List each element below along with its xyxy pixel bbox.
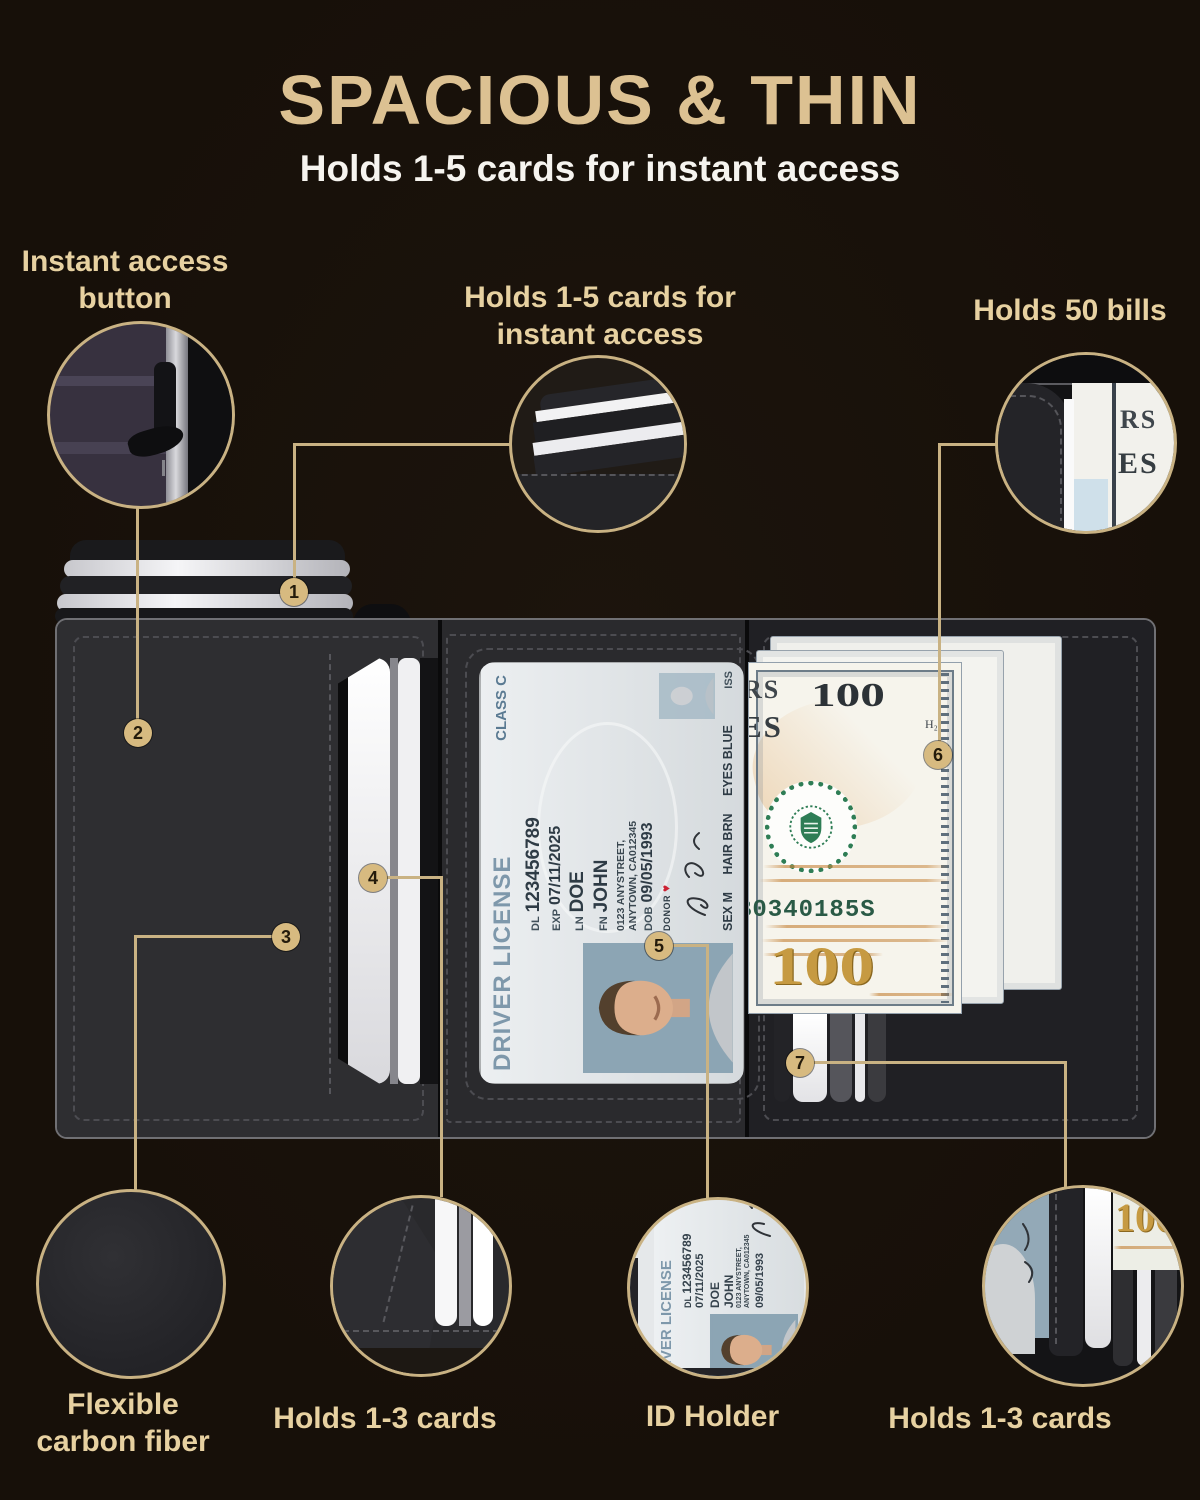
white-card xyxy=(1137,1270,1151,1366)
leader-line xyxy=(293,443,296,578)
license-class: CLASS C xyxy=(493,675,510,741)
leader-line xyxy=(1064,1061,1067,1187)
callout-line: instant access xyxy=(415,316,785,353)
field-label: DL xyxy=(530,916,542,931)
signature xyxy=(679,803,713,923)
label-flexible-carbon-fiber: Flexible carbon fiber xyxy=(8,1386,238,1460)
bill-denomination: 100 xyxy=(811,677,885,715)
page-subtitle: Holds 1-5 cards for instant access xyxy=(0,148,1200,190)
leather-pocket xyxy=(512,474,684,532)
marker-4: 4 xyxy=(359,864,387,892)
slot-shadow xyxy=(338,658,348,1084)
card-slot xyxy=(338,658,438,1084)
iss-field: ISS xyxy=(723,671,735,689)
gold-denomination: 100 xyxy=(1115,1194,1175,1241)
pocket-top-edge xyxy=(998,355,1174,385)
license-photo-fragment xyxy=(985,1188,1049,1338)
product-infographic: SPACIOUS & THIN Holds 1-5 cards for inst… xyxy=(0,0,1200,1500)
metal-card-stack xyxy=(55,538,415,624)
eyes-field: EYES BLUE xyxy=(721,725,735,796)
white-card xyxy=(1085,1188,1111,1348)
black-card xyxy=(420,658,438,1084)
gold-denomination: 100 xyxy=(769,935,874,997)
plate-position: H₂ xyxy=(925,717,938,732)
signature xyxy=(740,1197,780,1242)
id-window: DRIVER LICENSE CLASS C DL123456789 E xyxy=(479,662,744,1084)
bill-closeup: RS ES xyxy=(1072,383,1174,531)
callout-line: Holds 1-3 cards xyxy=(260,1400,510,1437)
script-line xyxy=(869,993,953,996)
marker-1: 1 xyxy=(280,578,308,606)
gray-card xyxy=(830,1014,852,1102)
window-frame-corner xyxy=(627,1258,758,1379)
card-edge xyxy=(459,1198,471,1326)
callout-line: Flexible xyxy=(8,1386,238,1423)
metal-card xyxy=(60,576,352,596)
button-stem xyxy=(162,460,165,476)
detail-circle-carbon-fiber xyxy=(36,1189,226,1379)
callout-instant-access-button: Instant access button xyxy=(5,243,245,317)
portrait-graphic xyxy=(583,943,733,1073)
seal-emblem xyxy=(788,804,834,850)
bill-text-fragment: ES xyxy=(748,709,783,745)
callout-line: Holds 1-3 cards xyxy=(880,1400,1120,1437)
treasury-seal-icon xyxy=(765,781,857,873)
leader-line xyxy=(136,505,139,720)
leader-line xyxy=(293,443,510,446)
callout-line: Holds 50 bills xyxy=(930,292,1200,329)
card-fan xyxy=(525,375,687,477)
callout-line: ID Holder xyxy=(600,1398,825,1435)
marker-6: 6 xyxy=(924,741,952,769)
black-card xyxy=(868,1014,886,1102)
portrait-graphic xyxy=(659,673,715,719)
license-address: 0123 ANYSTREET, xyxy=(615,817,627,931)
sex-field: SEX M xyxy=(721,892,735,931)
script-line xyxy=(759,879,949,882)
bill-tint-patch xyxy=(1072,479,1108,531)
callout-line: button xyxy=(5,280,245,317)
black-card xyxy=(1113,1270,1133,1366)
card-edge xyxy=(390,658,398,1084)
donor-label: DONOR xyxy=(662,895,672,931)
callout-line: Holds 1-5 cards for xyxy=(415,279,785,316)
leader-line xyxy=(938,443,941,743)
shadow xyxy=(188,324,232,506)
pocket-cards-fragment xyxy=(1113,1270,1181,1366)
page-title: SPACIOUS & THIN xyxy=(0,60,1200,140)
leader-line xyxy=(134,935,274,938)
leather-band xyxy=(50,376,170,386)
bill-serrated-edge xyxy=(941,673,949,1003)
field-value: 07/11/2025 xyxy=(547,826,564,905)
bill-text-fragment: RS xyxy=(748,675,780,705)
field-label: LN xyxy=(574,916,586,931)
stitching xyxy=(1010,395,1062,521)
detail-circle-right-cards: 100 xyxy=(982,1185,1184,1387)
serial-number: B0340185S xyxy=(748,897,876,924)
ghost-photo xyxy=(659,673,715,719)
hair-field: HAIR BRN xyxy=(721,814,735,875)
detail-circle-bills: RS ES xyxy=(995,352,1177,534)
leader-line xyxy=(134,935,137,1191)
bill-text-fragment: RS xyxy=(1120,405,1157,435)
field-value: DOE xyxy=(567,871,588,912)
script-line xyxy=(765,925,947,928)
label-id-holder: ID Holder xyxy=(600,1398,825,1435)
field-label: EXP xyxy=(551,909,563,931)
white-card xyxy=(473,1198,493,1326)
leader-line xyxy=(387,876,443,879)
label-holds-1-3-cards-left: Holds 1-3 cards xyxy=(260,1400,510,1437)
field-label: DOB xyxy=(643,907,655,931)
stitching xyxy=(1055,1194,1059,1344)
detail-circle-id-holder: DRIVER LICENSE DL 123456789 07/11/2025 D… xyxy=(627,1197,809,1379)
marker-2: 2 xyxy=(124,719,152,747)
leader-line xyxy=(938,443,996,446)
leather-corner xyxy=(998,383,1072,531)
leader-line xyxy=(440,876,443,1197)
detail-circle-card-fan xyxy=(509,355,687,533)
field-value: JOHN xyxy=(591,860,612,913)
field-value: 123456789 xyxy=(523,817,544,912)
white-card xyxy=(435,1198,457,1326)
license-fields: DL123456789 EXP07/11/2025 LNDOE FNJOHN 0… xyxy=(523,817,675,931)
leader-line xyxy=(706,944,709,1199)
donor-heart-icon: ♥ xyxy=(659,884,673,892)
label-holds-1-3-cards-right: Holds 1-3 cards xyxy=(880,1400,1120,1437)
script-line xyxy=(1113,1246,1179,1249)
license-photo xyxy=(583,943,733,1073)
hundred-dollar-bill: RS ES 100 H₂ B0340185S 100 xyxy=(748,662,962,1014)
callout-line: carbon fiber xyxy=(8,1423,238,1460)
detail-circle-card-slot xyxy=(330,1195,512,1377)
driver-license: DRIVER LICENSE CLASS C DL123456789 E xyxy=(481,663,743,1083)
license-address: ANYTOWN, CA012345 xyxy=(627,817,639,931)
callout-line: Instant access xyxy=(5,243,245,280)
signature-fragment xyxy=(1015,1218,1045,1288)
marker-5: 5 xyxy=(645,932,673,960)
field-value: 09/05/1993 xyxy=(639,822,656,902)
marker-3: 3 xyxy=(272,923,300,951)
bill-fragment: 100 xyxy=(1113,1188,1181,1270)
slot-stitching xyxy=(329,654,331,1094)
callout-holds-1-5-cards: Holds 1-5 cards for instant access xyxy=(415,279,785,353)
card-edge xyxy=(1064,399,1074,531)
black-card xyxy=(1155,1270,1177,1366)
detail-circle-instant-access-button xyxy=(47,321,235,509)
leather-divider xyxy=(1049,1188,1083,1356)
stitching xyxy=(333,1330,509,1335)
callout-holds-50-bills: Holds 50 bills xyxy=(930,292,1200,329)
leader-line xyxy=(814,1061,1067,1064)
marker-7: 7 xyxy=(786,1049,814,1077)
license-title: DRIVER LICENSE xyxy=(489,856,517,1071)
leader-line xyxy=(673,944,709,947)
white-card xyxy=(398,658,420,1084)
bill-border-line xyxy=(1112,383,1116,531)
bill-text-fragment: ES xyxy=(1118,447,1159,481)
license-descriptors: SEX M HAIR BRN EYES BLUE xyxy=(721,711,735,931)
script-line xyxy=(763,865,949,868)
field-label: FN xyxy=(598,916,610,931)
table-surface xyxy=(333,1348,509,1374)
white-card xyxy=(855,1014,865,1102)
